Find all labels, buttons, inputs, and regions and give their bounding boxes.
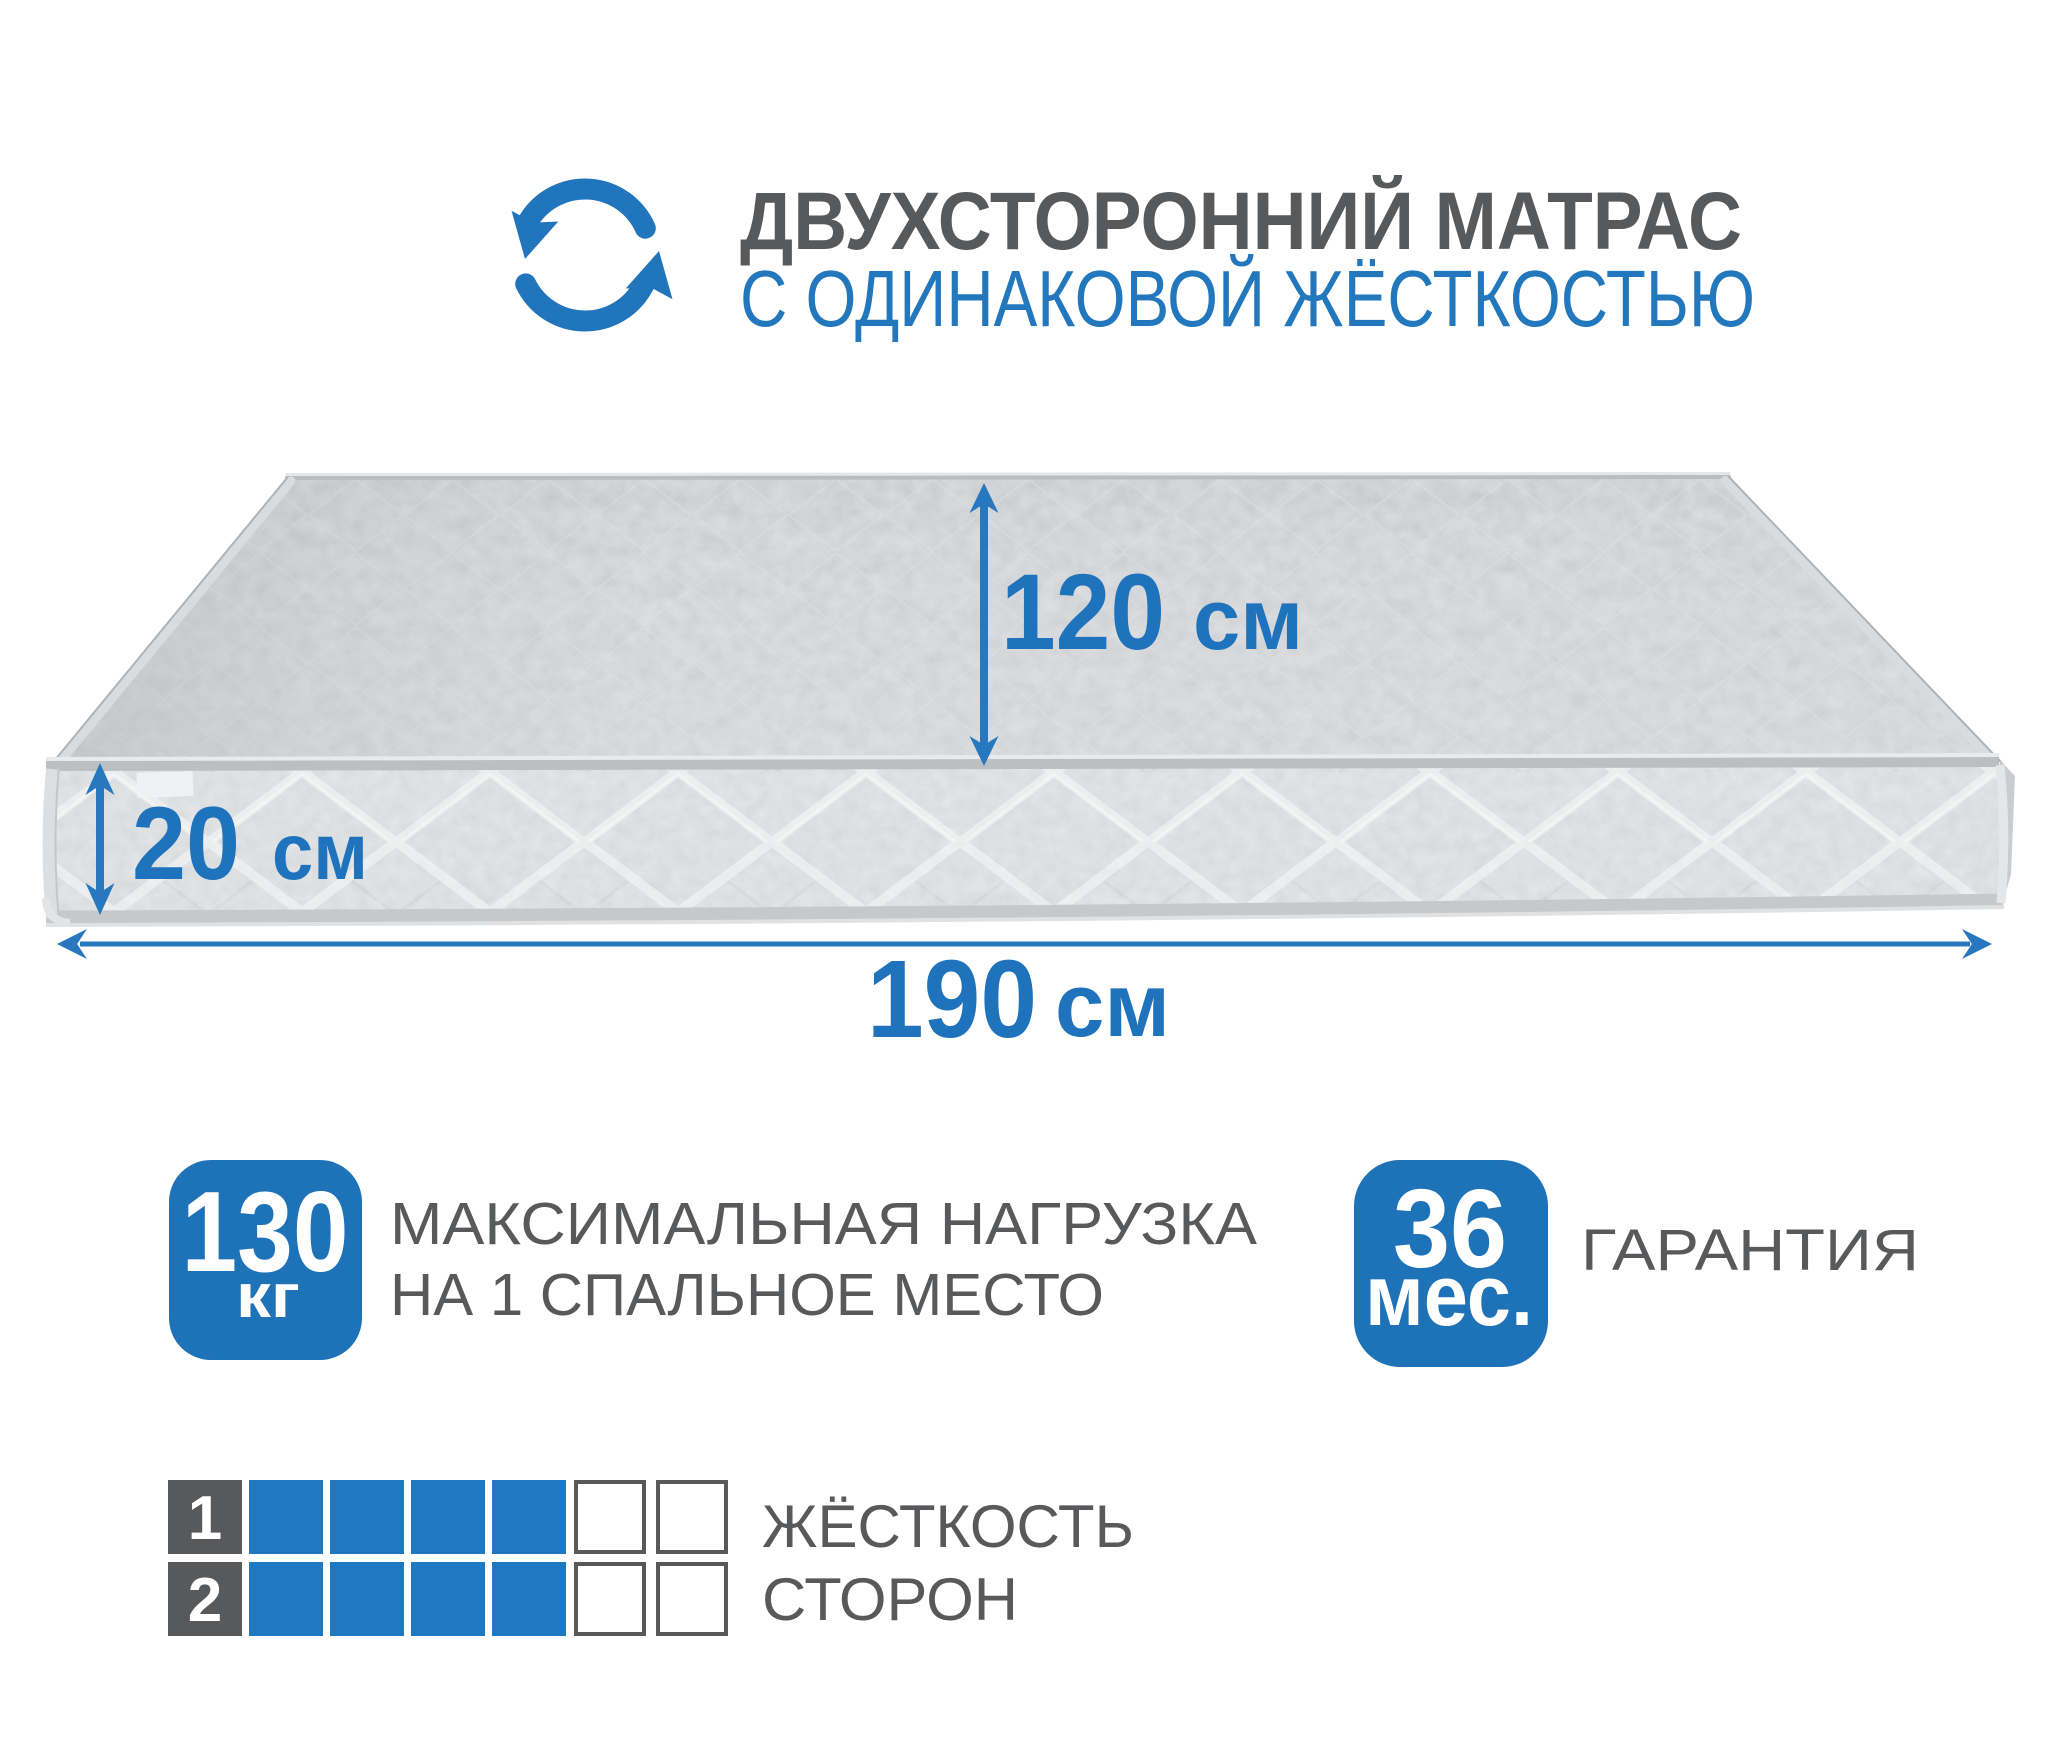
svg-text:190: 190 [867,938,1037,1061]
svg-text:120: 120 [1001,551,1165,672]
svg-text:см: см [272,807,368,896]
svg-text:МАКСИМАЛЬНАЯ НАГРУЗКА: МАКСИМАЛЬНАЯ НАГРУЗКА [390,1191,1258,1257]
svg-text:см: см [1055,956,1170,1056]
svg-text:1: 1 [188,1484,222,1553]
svg-text:СТОРОН: СТОРОН [762,1566,1018,1633]
svg-text:см: см [1193,572,1303,668]
svg-text:НА 1 СПАЛЬНОЕ МЕСТО: НА 1 СПАЛЬНОЕ МЕСТО [390,1262,1104,1328]
svg-text:ЖЁСТКОСТЬ: ЖЁСТКОСТЬ [762,1493,1134,1560]
svg-text:2: 2 [188,1566,222,1635]
svg-text:ГАРАНТИЯ: ГАРАНТИЯ [1581,1218,1919,1283]
svg-text:кг: кг [236,1262,300,1331]
svg-text:20: 20 [132,786,240,902]
svg-text:С ОДИНАКОВОЙ ЖЁСТКОСТЬЮ: С ОДИНАКОВОЙ ЖЁСТКОСТЬЮ [740,253,1755,343]
svg-text:мес.: мес. [1365,1248,1533,1344]
